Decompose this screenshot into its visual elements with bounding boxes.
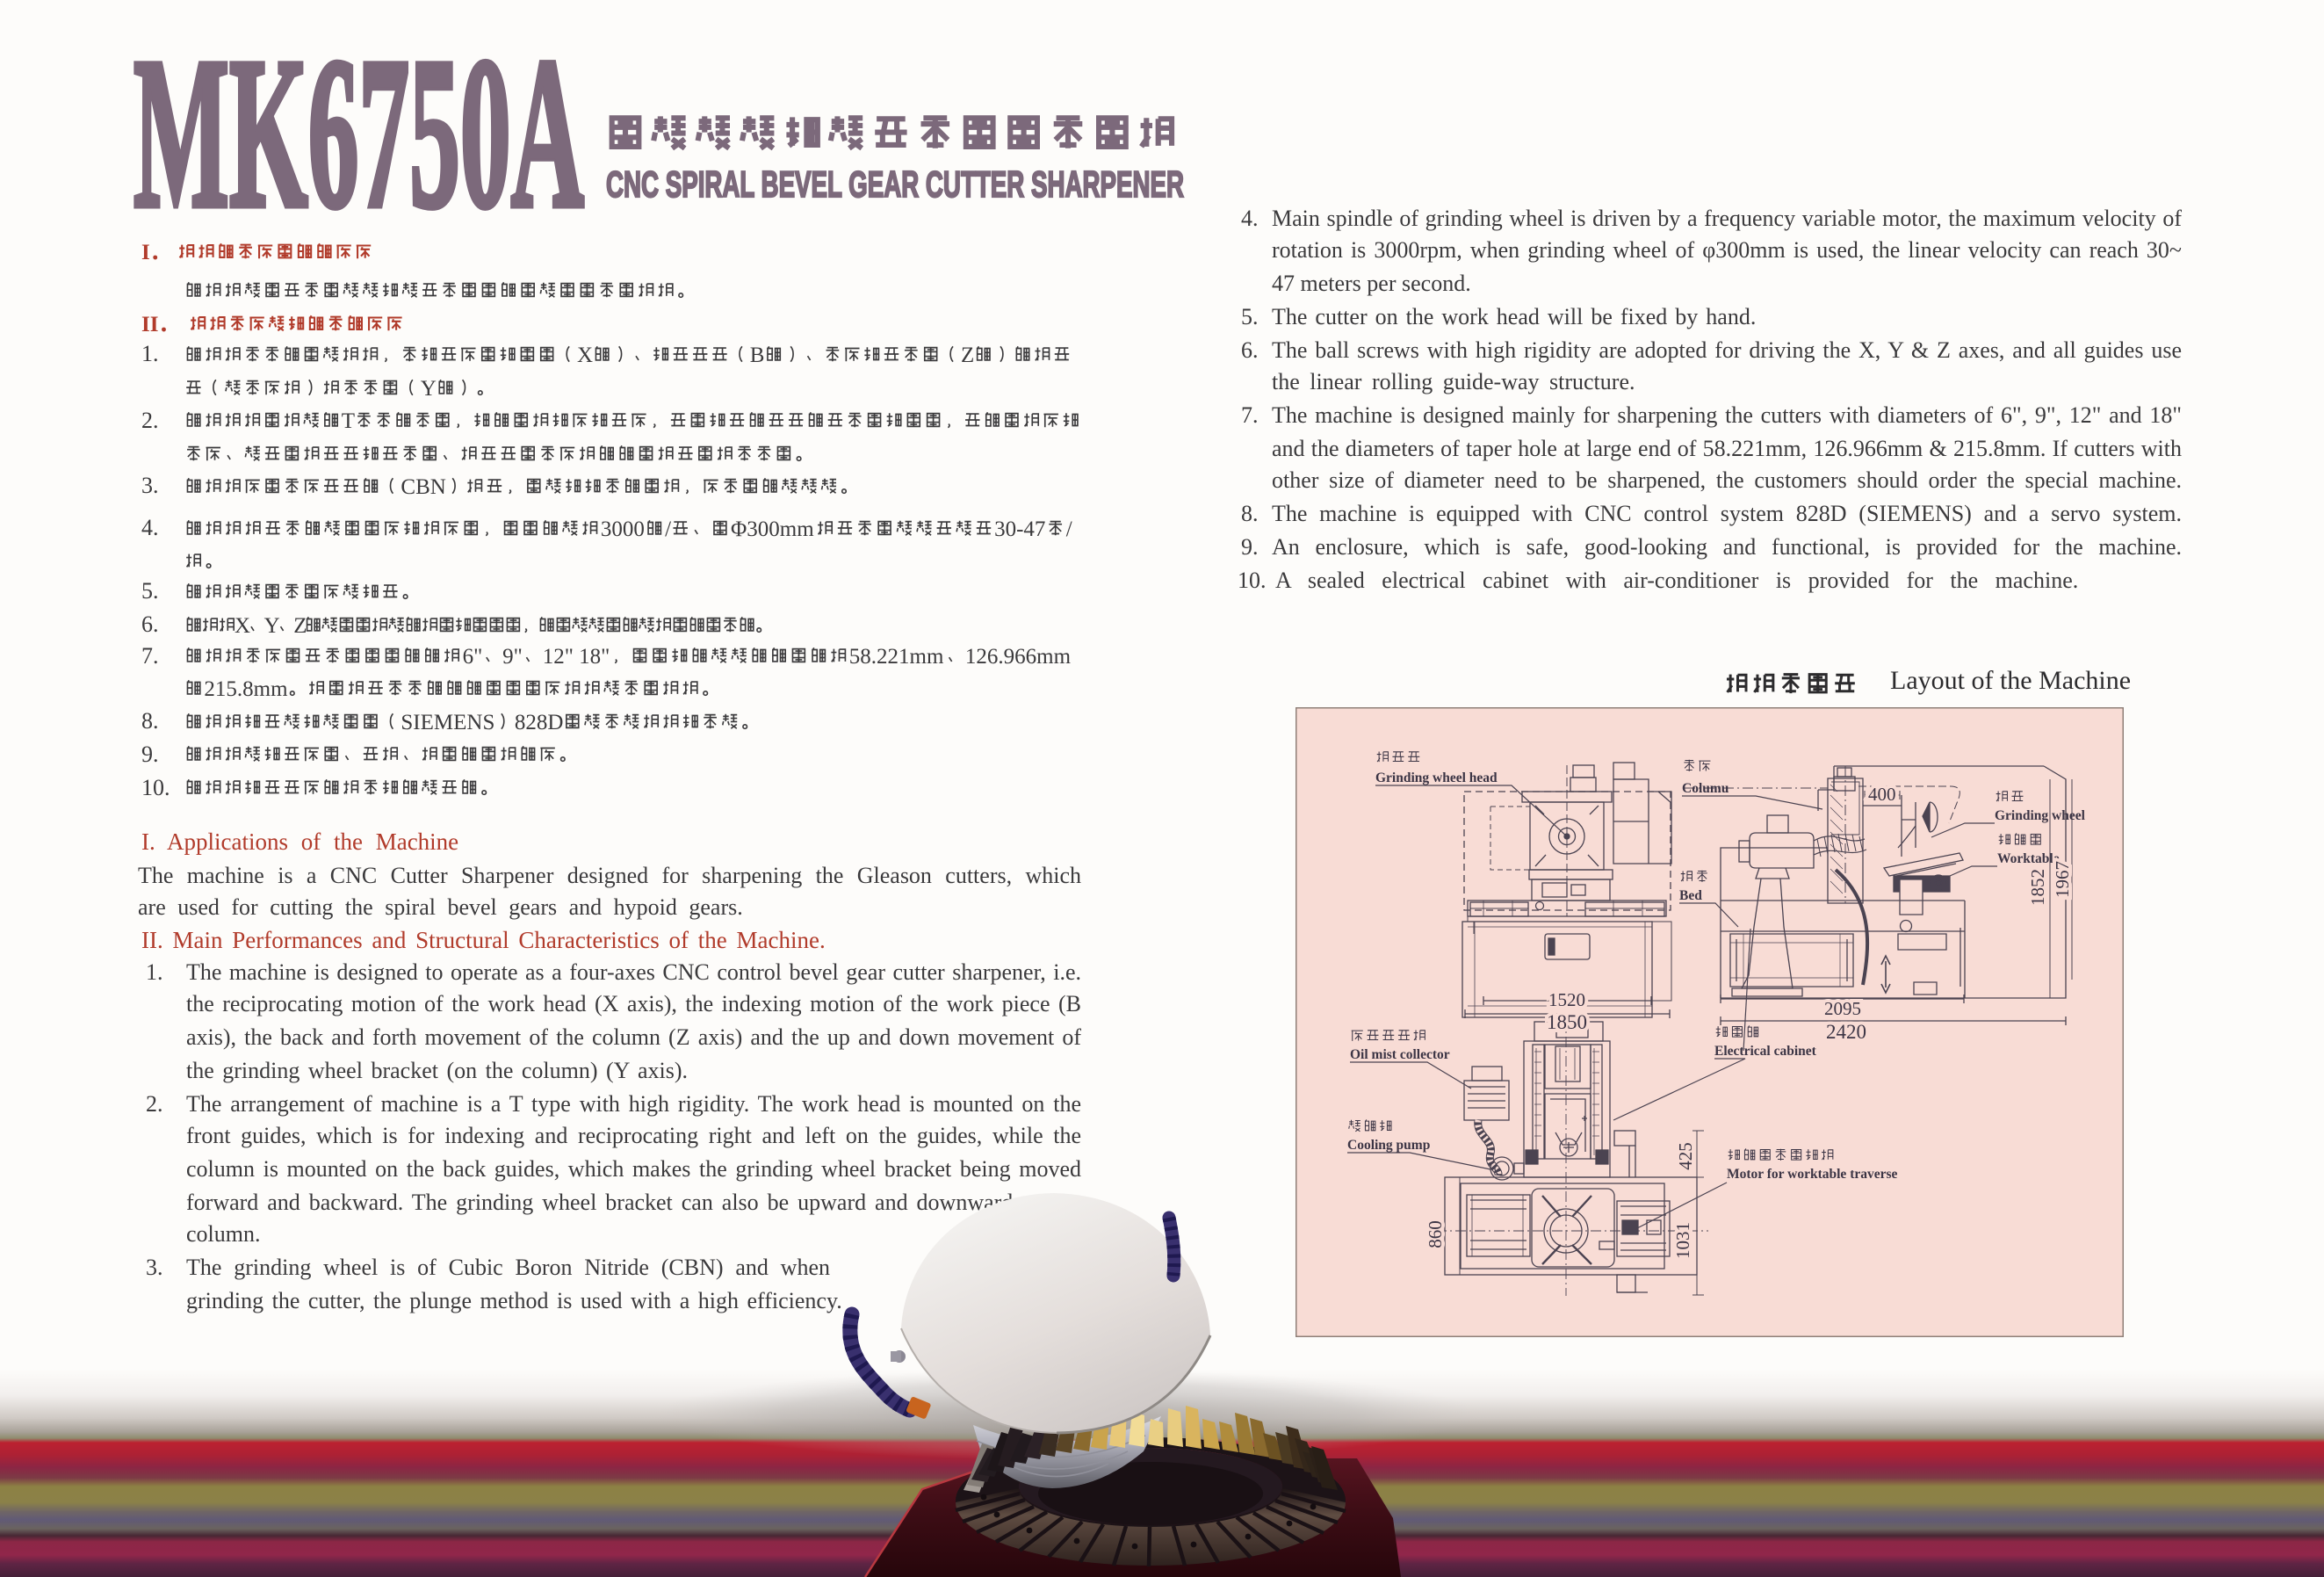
svg-text:Bed: Bed [1679,888,1702,903]
svg-text:828D: 828D [515,711,564,734]
svg-text:Z: Z [961,344,974,367]
svg-text:MK6750A: MK6750A [134,51,584,213]
svg-text:6": 6" [463,645,483,669]
svg-text:B: B [750,344,765,367]
svg-text:215.8mm: 215.8mm [204,677,288,701]
svg-text:/: / [665,517,671,541]
svg-text:12" 18": 12" 18" [543,645,610,669]
svg-text:3000: 3000 [601,517,645,541]
svg-text:Cooling pump: Cooling pump [1347,1138,1430,1153]
svg-text:1967: 1967 [2052,861,2073,898]
svg-text:2095: 2095 [1824,998,1861,1019]
svg-text:Motor for worktable traverse: Motor for worktable traverse [1727,1167,1898,1182]
svg-text:Z: Z [293,614,307,638]
svg-text:400: 400 [1868,784,1896,805]
svg-text:1850: 1850 [1547,1011,1587,1033]
svg-text:Φ300mm: Φ300mm [731,517,814,541]
svg-text:126.966mm: 126.966mm [965,645,1072,669]
svg-text:Grinding wheel head: Grinding wheel head [1375,770,1498,785]
svg-text:X: X [235,614,250,638]
svg-text:Worktable: Worktable [1997,851,2060,866]
svg-text:1031: 1031 [1672,1222,1693,1259]
svg-text:425: 425 [1675,1142,1696,1170]
svg-text:/: / [1066,517,1072,541]
svg-text:X: X [577,344,593,367]
svg-text:T: T [342,409,355,433]
svg-text:1520: 1520 [1548,989,1585,1010]
svg-text:9": 9" [502,645,523,669]
svg-text:CBN: CBN [401,475,445,499]
svg-text:Columu: Columu [1682,781,1729,796]
svg-text:2420: 2420 [1826,1021,1866,1043]
svg-text:I．: I． [141,241,172,264]
svg-text:Electrical cabinet: Electrical cabinet [1714,1044,1817,1059]
svg-text:Y: Y [264,614,280,638]
svg-text:Oil mist collector: Oil mist collector [1350,1047,1450,1062]
svg-text:Grinding wheel: Grinding wheel [1995,808,2086,823]
svg-text:1852: 1852 [2027,869,2048,906]
svg-text:Y: Y [421,377,437,401]
svg-text:SIEMENS: SIEMENS [401,711,494,734]
svg-text:CNC SPIRAL BEVEL GEAR CUTTER S: CNC SPIRAL BEVEL GEAR CUTTER SHARPENER [606,163,1184,204]
svg-text:30-47: 30-47 [994,517,1045,541]
svg-text:II．: II． [141,313,180,336]
svg-text:58.221mm: 58.221mm [849,645,944,669]
